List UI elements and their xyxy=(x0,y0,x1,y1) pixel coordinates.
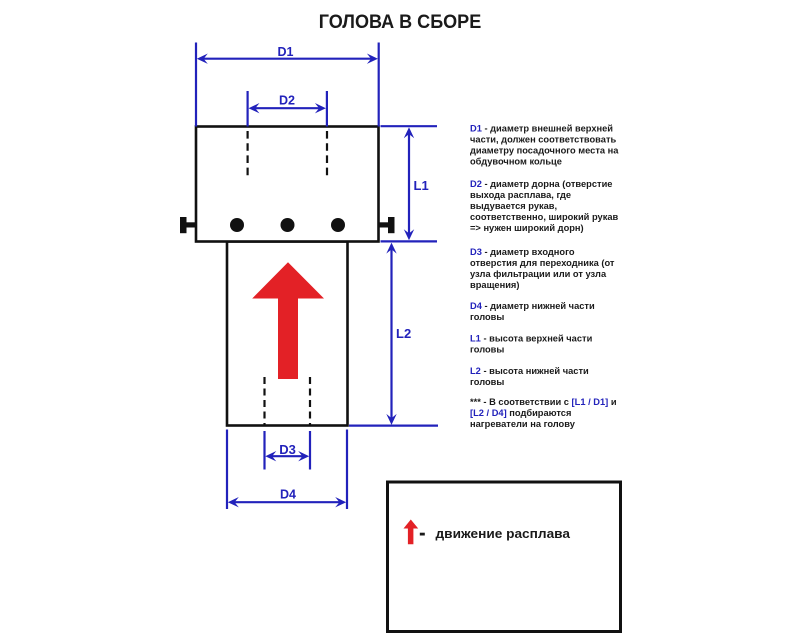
svg-text:D4 - диаметр нижней части: D4 - диаметр нижней части xyxy=(470,301,595,311)
svg-text:отверстия для переходника (от: отверстия для переходника (от xyxy=(470,258,615,268)
svg-text:D3 - диаметр входного: D3 - диаметр входного xyxy=(470,247,575,257)
svg-text:головы: головы xyxy=(470,344,504,354)
svg-text:D2 - диаметр дорна (отверстие: D2 - диаметр дорна (отверстие xyxy=(470,179,612,189)
svg-text:выхода расплава, где: выхода расплава, где xyxy=(470,190,571,200)
svg-text:L2: L2 xyxy=(396,326,411,341)
svg-text:L1: L1 xyxy=(414,178,429,193)
svg-text:*** - В соответствии с [L1 / D: *** - В соответствии с [L1 / D1] и xyxy=(470,397,617,407)
svg-text:соответственно, широкий рукав: соответственно, широкий рукав xyxy=(470,212,619,222)
svg-text:D1: D1 xyxy=(278,45,294,59)
svg-text:головы: головы xyxy=(470,312,504,322)
svg-text:движение расплава: движение расплава xyxy=(436,527,572,541)
svg-text:D2: D2 xyxy=(279,94,295,108)
svg-text:[L2 / D4] подбираются: [L2 / D4] подбираются xyxy=(470,408,571,418)
svg-text:головы: головы xyxy=(470,377,504,387)
svg-text:нагреватели на голову: нагреватели на голову xyxy=(470,419,576,429)
svg-text:части, должен соответствовать: части, должен соответствовать xyxy=(470,134,616,144)
svg-text:обдувочном кольце: обдувочном кольце xyxy=(470,156,562,166)
svg-text:L2 - высота нижней части: L2 - высота нижней части xyxy=(470,366,589,376)
svg-text:вращения): вращения) xyxy=(470,280,519,290)
svg-text:ГОЛОВА В СБОРЕ: ГОЛОВА В СБОРЕ xyxy=(319,11,482,33)
svg-text:D4: D4 xyxy=(280,488,296,502)
svg-text:D1 - диаметр внешней верхней: D1 - диаметр внешней верхней xyxy=(470,123,613,133)
svg-text:=> нужен широкий дорн): => нужен широкий дорн) xyxy=(470,223,584,233)
svg-text:узла фильтрации или от узла: узла фильтрации или от узла xyxy=(470,269,607,279)
svg-text:диаметру посадочного места на: диаметру посадочного места на xyxy=(470,145,619,155)
svg-text:L1 - высота верхней части: L1 - высота верхней части xyxy=(470,333,593,343)
svg-text:D3: D3 xyxy=(279,442,296,457)
svg-text:выдувается рукав,: выдувается рукав, xyxy=(470,201,557,211)
